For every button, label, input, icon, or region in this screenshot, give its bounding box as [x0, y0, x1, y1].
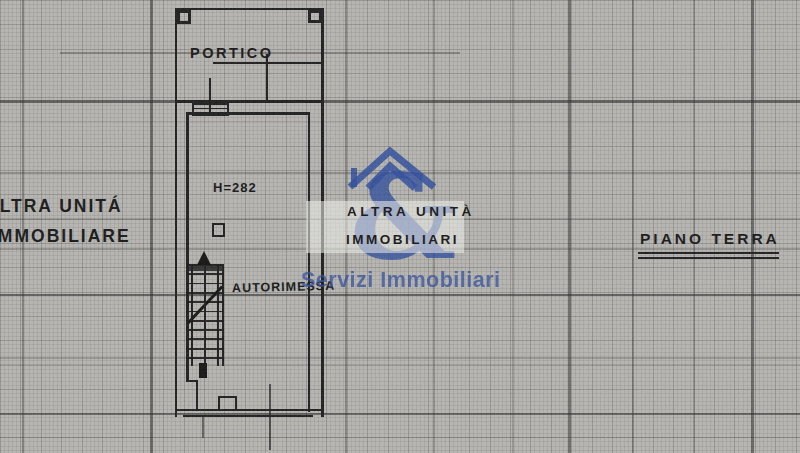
stair-direction-arrow [204, 256, 206, 372]
pillar-marker [308, 10, 322, 23]
left-unit-label-line1: ALTRA UNITÁ [0, 196, 123, 217]
center-unit-label-line2: IMMOBILIARI [346, 232, 459, 247]
pillar-marker [177, 10, 191, 24]
portico-label: PORTICO [190, 45, 274, 61]
floor-level-label: PIANO TERRA [640, 230, 780, 248]
pillar-marker [218, 396, 237, 411]
ceiling-height-label: H=282 [213, 180, 257, 195]
watermark-company-name: Servizi Immobiliari [301, 268, 500, 293]
center-unit-label-line1: ALTRA UNITÀ [347, 204, 475, 219]
left-unit-label-line2: IMMOBILIARE [0, 226, 131, 247]
floor-level-underline [638, 252, 779, 254]
floor-level-underline [638, 257, 779, 260]
arrow-head-icon [197, 251, 211, 265]
column-marker [212, 223, 225, 237]
scanned-floor-plan-document: & [0, 0, 800, 453]
